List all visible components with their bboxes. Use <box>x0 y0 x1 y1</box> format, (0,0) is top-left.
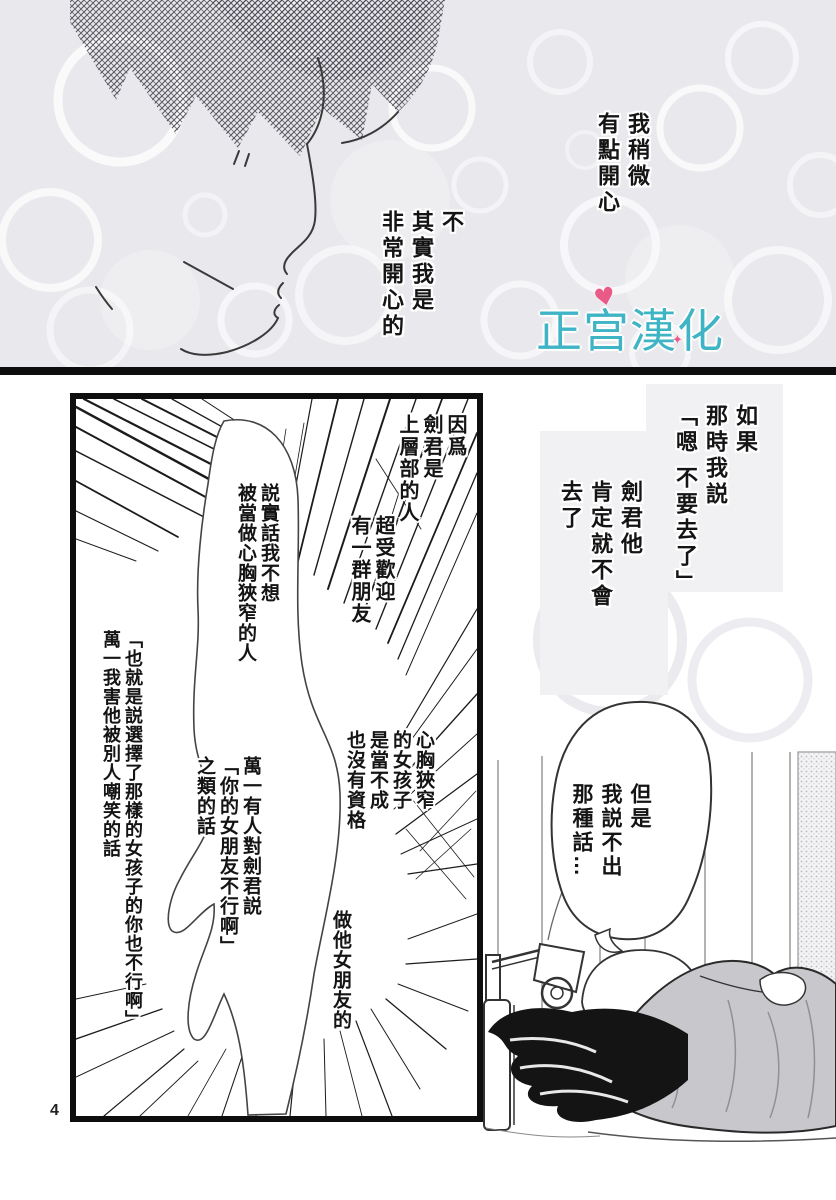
bubble-but-text: 但是我説不出那種話… <box>567 783 654 879</box>
page-number: 4 <box>50 1102 59 1120</box>
narration-popular: 超受歡迎有一群朋友 <box>347 515 395 625</box>
but-bubble: 但是我説不出那種話… <box>540 695 725 957</box>
bubble-honestly-text: 説實話我不想被當做心胸狹窄的人 <box>234 483 280 663</box>
scanlation-logo-text: 正宫漢化組 <box>536 304 724 368</box>
narration-that-is: 「也就是説選擇了那樣的女孩子的你也不行啊」萬一我害他被別人嘲笑的話 <box>100 630 144 1029</box>
narration-because: 因爲劍君是上層部的人 <box>395 414 467 524</box>
heart-icon: ♥ <box>591 281 619 313</box>
bubble-if-someone-text: 萬一有人對劍君説「你的女朋友不行啊」之類的話 <box>193 756 262 956</box>
narration-slightly-happy: 我稍微有點開心 <box>592 112 652 216</box>
manga-page: 我稍微有點開心 不其實我是非常開心的 正宫漢化組 ♥ ✦ 如果那時我説「嗯 不要… <box>0 0 836 1200</box>
panel-divider <box>0 367 836 375</box>
narration-ken-wouldnt-go: 劍君他肯定就不會去了 <box>555 480 645 610</box>
bed-sheet-line <box>588 1132 836 1141</box>
narration-actually-happy: 不其實我是非常開心的 <box>376 210 466 340</box>
main-panel: 因爲劍君是上層部的人 超受歡迎有一群朋友 説實話我不想被當做心胸狹窄的人 「也就… <box>70 393 483 1122</box>
sparkle-icon: ✦ <box>672 333 684 348</box>
scanlation-logo: 正宫漢化組 ♥ ✦ <box>536 295 746 365</box>
top-panel: 我稍微有點開心 不其實我是非常開心的 正宫漢化組 ♥ ✦ <box>0 0 836 368</box>
narration-if-said: 如果那時我説「嗯 不要去了」 <box>670 404 760 596</box>
narration-narrow-minded: 心胸狹窄的女孩子是當不成也沒有資格 <box>343 730 435 830</box>
narration-his-girlfriend: 做他女朋友的 <box>329 910 352 1030</box>
